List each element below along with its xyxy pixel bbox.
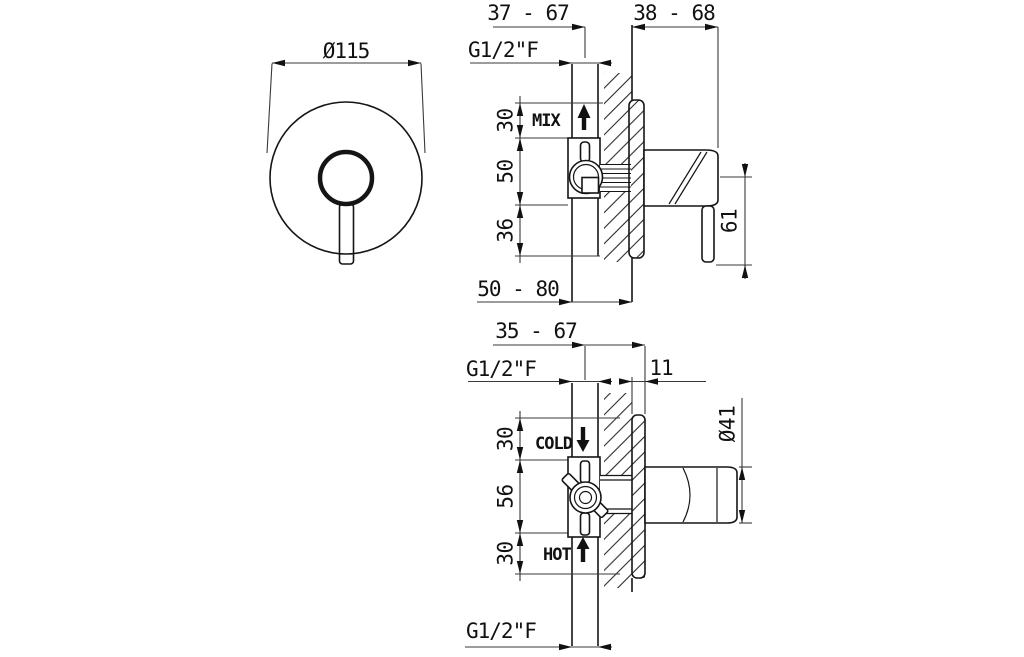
cartridge-stem [581, 142, 590, 162]
plate-thickness-label: 11 [649, 356, 673, 380]
arrowhead-icon [517, 125, 523, 138]
front-view: Ø115 [267, 39, 425, 264]
handle-ring [320, 152, 372, 204]
handle-lever [702, 206, 714, 262]
knob-diameter-label: Ø41 [715, 406, 739, 442]
arrowhead-icon [517, 192, 523, 205]
arrowhead-icon [742, 265, 748, 278]
arrowhead-icon [517, 103, 523, 116]
outlet-stub [600, 165, 631, 192]
cartridge-stem [581, 461, 590, 483]
shower-mixer-dimension-drawing: Ø115 37 - 67 38 - 68 G1/2"F [0, 0, 1024, 657]
arrowhead-icon [598, 60, 611, 66]
offset-bottom-label: 30 [493, 541, 517, 565]
handle-projection-label: 38 - 68 [633, 1, 715, 25]
arrowhead-icon [272, 60, 285, 66]
lever-length-label: 61 [717, 209, 741, 233]
plate-outline [270, 102, 422, 254]
arrowhead-icon [572, 24, 585, 30]
mix-label: MIX [532, 111, 561, 131]
arrowhead-icon [619, 299, 632, 305]
inlet-thread-label: G1/2"F [466, 357, 536, 381]
cartridge-keyway [582, 178, 599, 194]
offset-bottom-label: 36 [493, 218, 517, 242]
wall-section-hatch [632, 100, 644, 258]
arrowhead-icon [559, 378, 572, 384]
offset-center-label: 50 [493, 159, 517, 183]
arrowhead-icon [559, 60, 572, 66]
depth-range-label: 35 - 67 [495, 319, 577, 343]
arrowhead-icon [572, 342, 585, 348]
arrowhead-icon [598, 644, 611, 650]
up-arrow-icon [577, 537, 590, 562]
cartridge-stem [581, 513, 590, 535]
technical-drawing-page: Ø115 37 - 67 38 - 68 G1/2"F [0, 0, 1024, 657]
arrowhead-icon [517, 447, 523, 460]
plate-diameter-label: Ø115 [323, 39, 370, 63]
diverter-knob [645, 467, 737, 523]
mixer-side-view: 37 - 67 38 - 68 G1/2"F [468, 1, 752, 305]
arrowhead-icon [739, 467, 745, 480]
offset-center-label: 56 [493, 484, 517, 508]
depth-range-label: 37 - 67 [487, 1, 569, 25]
arrowhead-icon [619, 378, 632, 384]
hot-label: HOT [543, 545, 571, 565]
arrowhead-icon [517, 205, 523, 218]
arrowhead-icon [559, 299, 572, 305]
up-arrow-icon [578, 104, 591, 130]
arrowhead-icon [517, 561, 523, 574]
cold-label: COLD [535, 434, 573, 454]
arrowhead-icon [742, 164, 748, 177]
handle-knob [644, 150, 718, 206]
arrowhead-icon [517, 243, 523, 256]
wall-section-hatch [632, 415, 645, 578]
diverter-side-view: 35 - 67 G1/2"F 11 [465, 319, 752, 650]
arrowhead-icon [517, 138, 523, 151]
outlet-thread-label: G1/2"F [466, 619, 536, 643]
inlet-thread-label: G1/2"F [468, 38, 538, 62]
down-arrow-icon [577, 427, 590, 452]
arrowhead-icon [598, 378, 611, 384]
offset-top-label: 30 [493, 108, 517, 132]
arrowhead-icon [517, 460, 523, 473]
arrowhead-icon [739, 510, 745, 523]
lever-front [340, 204, 354, 264]
arrowhead-icon [517, 418, 523, 431]
pipe-depth-label: 50 - 80 [477, 277, 559, 301]
offset-top-label: 30 [493, 427, 517, 451]
arrowhead-icon [632, 342, 645, 348]
arrowhead-icon [408, 60, 421, 66]
arrowhead-icon [517, 520, 523, 533]
arrowhead-icon [559, 644, 572, 650]
arrowhead-icon [517, 533, 523, 546]
